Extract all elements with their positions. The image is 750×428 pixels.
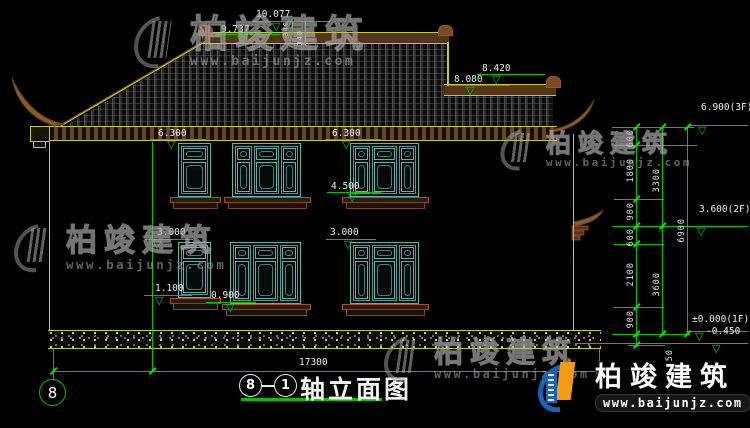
- left-wall: [49, 140, 50, 330]
- dim-boundary: [614, 244, 664, 245]
- level-arrow-icon: [697, 227, 705, 236]
- level-arrow-icon: [226, 303, 234, 312]
- level-1f-window-top-right: 3.000: [330, 227, 359, 238]
- level-ridge-bottom: 9.737: [221, 24, 250, 35]
- level-line: [252, 21, 330, 22]
- axis-extension-line: [152, 142, 153, 371]
- dim-6900: 6900: [677, 218, 687, 242]
- dim-boundary: [614, 199, 664, 200]
- dim-3300: 3300: [652, 168, 662, 192]
- level-arrow-icon: [695, 332, 703, 341]
- elevation-drawing-canvas: 10.077 9.737 340 340 8.420 8.080 6.300 6…: [0, 0, 750, 428]
- title-axis-to-bubble: 1: [274, 374, 297, 397]
- level-arrow-icon: [698, 126, 706, 135]
- level-line: [477, 74, 545, 75]
- window-2f-narrow: [178, 143, 211, 197]
- dim-1800: 1800: [626, 158, 636, 182]
- dim-3600: 3600: [652, 272, 662, 296]
- dim-600b: 600: [626, 228, 636, 246]
- ridge-ornament-right: [438, 25, 453, 36]
- sill: [173, 303, 218, 310]
- dim-900b: 900: [626, 310, 636, 328]
- level-line: [150, 139, 206, 140]
- window-2f-wide-right: [350, 143, 419, 197]
- level-1f-sill-wide: 0.900: [211, 290, 240, 301]
- dim-chain-line-1: [636, 127, 637, 347]
- eave-left-bracket: [30, 126, 50, 142]
- level-arrow-icon: [348, 193, 356, 202]
- window-1f-wide-left: [230, 242, 301, 304]
- dim-chain-line-2: [662, 127, 663, 334]
- roof-step-edge: [447, 42, 449, 86]
- ridge-ornament-left: [198, 25, 213, 36]
- dim-2100: 2100: [626, 262, 636, 286]
- level-3f: 6.900(3F): [701, 102, 750, 113]
- level-1f: ±0.000(1F): [692, 314, 749, 325]
- level-line: [450, 85, 510, 86]
- dim-boundary: [612, 127, 694, 128]
- sill: [173, 202, 218, 209]
- watermark-url: www.baijunjz.com: [546, 157, 692, 169]
- dim-900a: 900: [626, 202, 636, 220]
- sill: [346, 309, 425, 316]
- level-arrow-icon: [237, 35, 245, 44]
- ground-level-line: [575, 343, 748, 344]
- level-arrow-icon: [155, 296, 163, 305]
- brand-logo: 柏竣建筑 www.baijunjz.com: [534, 358, 750, 418]
- level-arrow-icon: [466, 86, 474, 95]
- sill: [228, 202, 307, 209]
- total-width-dim: 17300: [299, 357, 328, 368]
- brand-logo-name: 柏竣建筑: [595, 364, 735, 391]
- small-dim-340b: 340: [296, 30, 304, 46]
- level-line: [325, 139, 381, 140]
- level-arrow-icon: [712, 344, 720, 353]
- dim-600a: 600: [626, 129, 636, 147]
- level-ridge-top: 10.077: [256, 9, 290, 20]
- brand-logo-url: www.baijunjz.com: [595, 394, 750, 412]
- title-dash: [262, 385, 274, 387]
- level-arrow-icon: [167, 140, 175, 149]
- sill: [346, 202, 425, 209]
- small-dim-line: [292, 22, 293, 34]
- window-1f-wide-right: [350, 242, 419, 304]
- upturned-eave-left-icon: [8, 74, 66, 128]
- level-1f-window-top-left: 3.000: [157, 227, 186, 238]
- right-wall: [573, 134, 574, 330]
- level-2f: 3.600(2F): [699, 204, 750, 215]
- dim-chain-line-3: [687, 127, 688, 334]
- small-dim-line: [305, 22, 306, 46]
- drawing-title: 轴立面图: [300, 370, 412, 406]
- dim-boundary: [612, 334, 690, 335]
- sill: [226, 309, 307, 316]
- upturned-eave-right-icon: [547, 98, 597, 134]
- small-dim-340a: 340: [282, 21, 290, 37]
- axis-bubble-8: 8: [39, 379, 66, 406]
- level-arrow-icon: [344, 240, 352, 249]
- eave-rafter-band: [30, 126, 557, 141]
- level-arrow-icon: [342, 140, 350, 149]
- dim-boundary: [614, 307, 664, 308]
- watermark-logo-icon: [16, 222, 58, 274]
- window-2f-wide-left: [232, 143, 301, 197]
- wall-eave-bracket-icon: [571, 210, 605, 248]
- wing-ridge-ornament: [546, 76, 561, 88]
- level-arrow-icon: [492, 75, 500, 84]
- level-ground: -0.450: [706, 326, 740, 337]
- level-arrow-icon: [272, 22, 280, 31]
- brand-logo-icon: [534, 358, 588, 418]
- plinth-band: [48, 330, 601, 349]
- eave-left-step: [33, 141, 46, 148]
- level-arrow-icon: [153, 240, 161, 249]
- title-axis-from-bubble: 8: [239, 374, 262, 397]
- dim-ext-left: [53, 348, 54, 380]
- level-1f-sill-narrow: 1.100: [155, 283, 184, 294]
